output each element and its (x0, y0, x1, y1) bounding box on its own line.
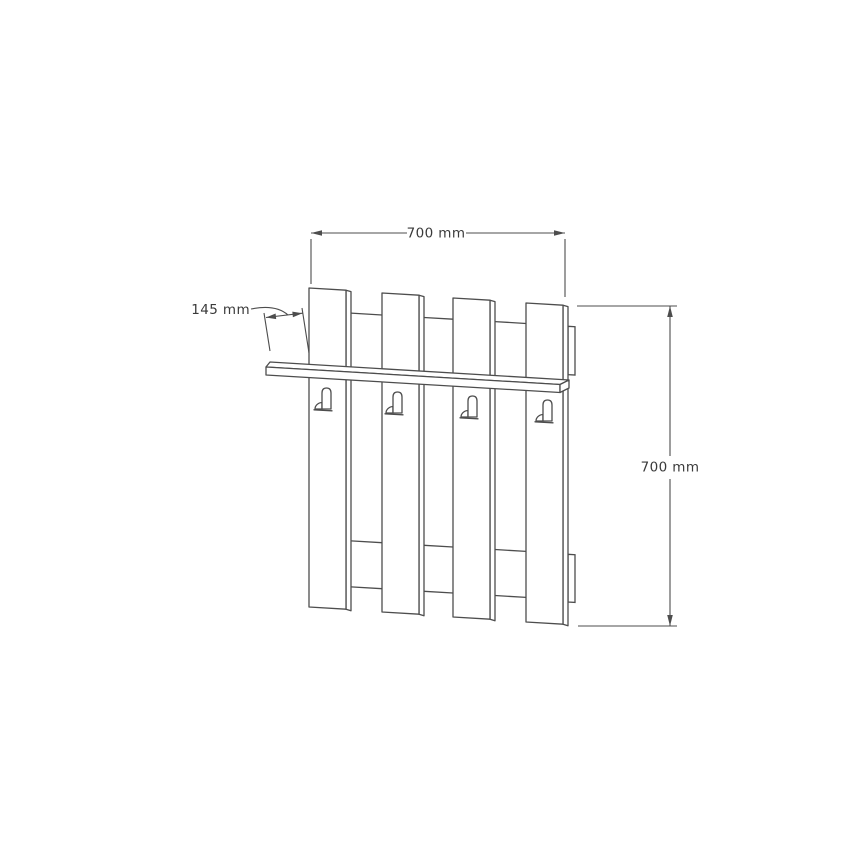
width-arrow-right (554, 230, 565, 236)
slats (309, 288, 568, 626)
slat-1 (309, 288, 351, 611)
top-rail-edge-gap3 (495, 322, 526, 324)
hook-3-bar (468, 396, 477, 417)
depth-dimension-label: 145 mm (191, 302, 250, 318)
bottom-rail-bottom-edge-gap3 (495, 596, 526, 598)
diagram-canvas: 700 mm 700 mm 145 mm (0, 0, 868, 868)
dimension-width: 700 mm (311, 226, 565, 298)
slat-3-front-face (453, 298, 490, 619)
top-rail-edge-gap1 (351, 313, 382, 315)
bottom-rail-top-edge-gap3 (495, 550, 526, 552)
hook-2-bar (393, 392, 402, 413)
depth-extension-line-left (264, 313, 270, 351)
depth-leader-curve (251, 307, 288, 315)
height-arrow-bottom (667, 615, 673, 626)
bottom-rail-bottom-edge-gap1 (351, 587, 382, 589)
slat-1-side-face (346, 290, 351, 611)
bottom-rail-end-face (568, 554, 575, 602)
width-dimension-label: 700 mm (407, 226, 466, 242)
bottom-rail-bottom-edge-gap2 (424, 591, 453, 593)
width-arrow-left (311, 230, 322, 236)
slat-4-side-face (563, 305, 568, 626)
height-arrow-top (667, 306, 673, 317)
slat-3 (453, 298, 495, 621)
depth-extension-line-right (302, 308, 309, 353)
top-rail-edge-gap2 (424, 318, 453, 320)
slat-4-front-face (526, 303, 563, 624)
coat-rack-technical-drawing: 700 mm 700 mm 145 mm (0, 0, 868, 868)
slat-2 (382, 293, 424, 616)
depth-arrow-right (292, 312, 302, 318)
slat-1-front-face (309, 288, 346, 609)
dimension-height: 700 mm (577, 306, 699, 626)
hook-1-bar (322, 388, 331, 409)
slat-4 (526, 303, 568, 626)
slat-3-side-face (490, 300, 495, 621)
height-dimension-label: 700 mm (641, 460, 700, 476)
bottom-rail-top-edge-gap1 (351, 541, 382, 543)
dimension-depth: 145 mm (191, 302, 309, 353)
top-rail-end-face (568, 326, 575, 375)
slat-2-front-face (382, 293, 419, 614)
bottom-rail-top-edge-gap2 (424, 545, 453, 547)
depth-arrow-left (266, 314, 276, 320)
slat-2-side-face (419, 295, 424, 616)
hook-4-bar (543, 400, 552, 421)
